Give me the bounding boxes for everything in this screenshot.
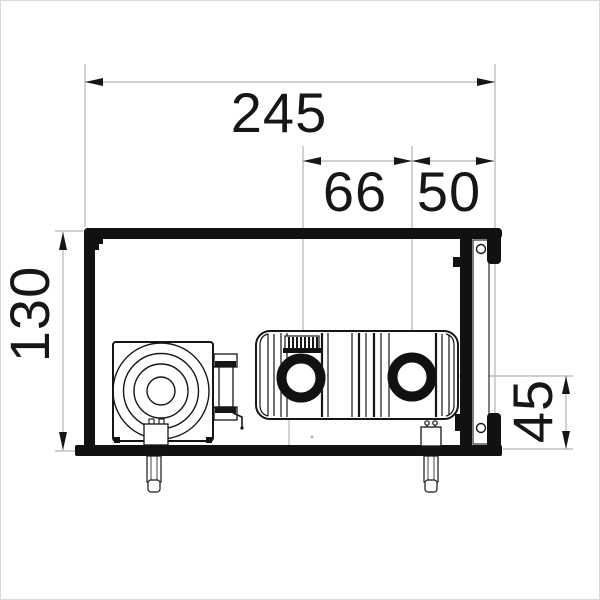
mounting-bracket <box>473 240 489 444</box>
fan-assembly <box>113 342 244 445</box>
construction-dot <box>311 436 314 439</box>
arrow-up-icon <box>59 232 67 250</box>
casing-nub-bottom <box>455 414 463 431</box>
dim-label-pipe-spacing: 66 <box>323 164 387 220</box>
heat-exchanger <box>256 331 458 419</box>
casing-step-detail <box>95 244 99 250</box>
casing-clip-top <box>487 228 501 264</box>
arrow-right-icon <box>477 78 495 86</box>
casing-nub-top <box>453 257 461 267</box>
fan-motor <box>214 354 244 430</box>
arrow-left-icon <box>303 157 321 165</box>
screw-hole-icon <box>477 245 486 254</box>
fan-foot <box>206 437 212 443</box>
leg-right <box>424 456 438 492</box>
fan-foot <box>114 437 120 443</box>
arrow-left-icon <box>85 78 103 86</box>
dim-label-overall-height: 130 <box>2 266 58 362</box>
casing-clip-bottom <box>487 413 501 456</box>
pipe-valve-block <box>283 336 321 353</box>
dim-label-pipe-to-edge: 50 <box>417 164 481 220</box>
dim-label-pipe-center-height: 45 <box>505 379 561 443</box>
drawing-canvas: 245 66 50 130 45 <box>0 0 600 600</box>
casing-top-wall <box>84 228 502 239</box>
arrow-right-icon <box>394 157 412 165</box>
drain-valve <box>421 421 441 446</box>
casing-left-wall <box>84 228 95 456</box>
arrow-down-icon <box>59 432 67 450</box>
leg-left <box>147 456 161 492</box>
motor-wire-end <box>240 426 243 429</box>
dim-label-overall-width: 245 <box>231 85 327 141</box>
screw-hole-icon <box>477 424 486 433</box>
casing-step-detail <box>95 239 103 244</box>
